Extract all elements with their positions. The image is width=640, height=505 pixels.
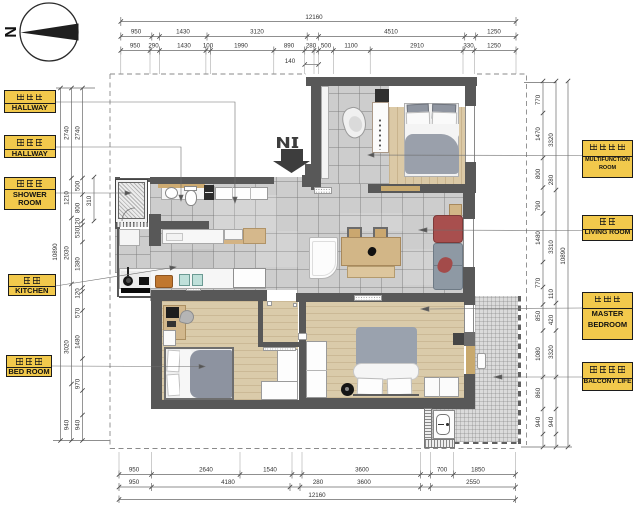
- svg-text:2550: 2550: [466, 479, 480, 486]
- svg-text:1470: 1470: [535, 127, 542, 141]
- svg-text:500: 500: [75, 180, 82, 191]
- svg-text:4510: 4510: [384, 29, 398, 36]
- svg-text:1850: 1850: [471, 467, 485, 474]
- svg-text:110: 110: [548, 289, 555, 299]
- svg-text:950: 950: [129, 479, 140, 486]
- svg-text:1430: 1430: [176, 29, 190, 36]
- svg-text:310: 310: [86, 195, 93, 206]
- svg-text:890: 890: [284, 43, 295, 50]
- svg-text:1250: 1250: [487, 29, 501, 36]
- svg-text:800: 800: [535, 168, 542, 179]
- svg-text:100: 100: [203, 43, 214, 50]
- svg-text:2910: 2910: [410, 43, 424, 50]
- svg-text:950: 950: [129, 467, 140, 474]
- svg-text:3320: 3320: [548, 133, 555, 147]
- svg-text:530: 530: [75, 227, 82, 238]
- svg-text:1480: 1480: [75, 335, 82, 349]
- svg-text:3600: 3600: [357, 479, 371, 486]
- svg-text:3310: 3310: [548, 240, 555, 254]
- svg-text:3020: 3020: [64, 340, 71, 354]
- svg-text:3320: 3320: [548, 345, 555, 359]
- svg-text:1540: 1540: [263, 467, 277, 474]
- svg-text:4180: 4180: [221, 479, 235, 486]
- svg-text:2740: 2740: [75, 126, 82, 140]
- svg-text:1100: 1100: [344, 43, 358, 50]
- svg-text:140: 140: [285, 58, 296, 65]
- svg-text:2030: 2030: [64, 246, 71, 260]
- svg-text:330: 330: [463, 43, 474, 50]
- svg-text:970: 970: [75, 378, 82, 389]
- svg-text:1250: 1250: [487, 43, 501, 50]
- svg-text:950: 950: [130, 43, 141, 50]
- svg-text:120: 120: [75, 217, 82, 228]
- svg-text:770: 770: [535, 277, 542, 288]
- svg-text:2640: 2640: [199, 467, 213, 474]
- svg-text:280: 280: [306, 43, 317, 50]
- svg-text:500: 500: [321, 43, 332, 50]
- svg-text:280: 280: [548, 174, 555, 185]
- svg-text:860: 860: [535, 387, 542, 398]
- svg-text:1990: 1990: [234, 43, 248, 50]
- svg-text:10890: 10890: [52, 243, 59, 261]
- svg-text:790: 790: [535, 200, 542, 211]
- svg-text:950: 950: [131, 29, 142, 36]
- svg-text:3120: 3120: [250, 29, 264, 36]
- svg-text:1080: 1080: [535, 347, 542, 361]
- svg-text:1480: 1480: [535, 231, 542, 245]
- svg-text:800: 800: [75, 202, 82, 213]
- svg-text:770: 770: [535, 94, 542, 105]
- svg-text:3600: 3600: [355, 467, 369, 474]
- svg-text:850: 850: [535, 310, 542, 321]
- svg-text:12160: 12160: [305, 14, 323, 21]
- svg-text:940: 940: [535, 416, 542, 427]
- svg-text:10890: 10890: [560, 247, 567, 265]
- svg-text:1380: 1380: [75, 257, 82, 271]
- svg-text:1430: 1430: [177, 43, 191, 50]
- svg-text:940: 940: [75, 419, 82, 430]
- svg-text:280: 280: [313, 479, 324, 486]
- svg-text:940: 940: [64, 419, 71, 430]
- svg-text:420: 420: [548, 314, 555, 325]
- svg-text:700: 700: [437, 467, 448, 474]
- svg-text:120: 120: [75, 288, 82, 299]
- svg-text:12160: 12160: [308, 492, 326, 499]
- svg-text:570: 570: [75, 307, 82, 318]
- svg-text:2740: 2740: [64, 126, 71, 140]
- svg-text:N: N: [3, 26, 20, 38]
- svg-text:290: 290: [148, 43, 159, 50]
- svg-text:940: 940: [548, 416, 555, 427]
